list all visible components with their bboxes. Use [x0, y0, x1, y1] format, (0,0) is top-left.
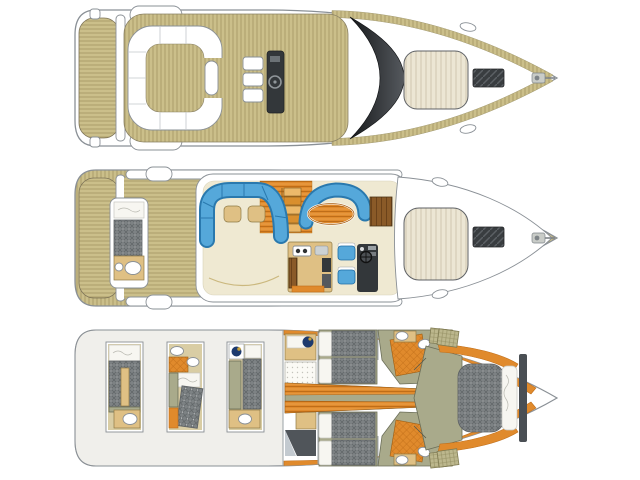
yacht-deck-plan-image	[0, 0, 640, 480]
vip-bow-cabin	[414, 329, 527, 468]
guest-bed-1	[332, 331, 375, 356]
bench-cushion	[114, 220, 142, 256]
optional-cabin-layout-2	[167, 342, 204, 432]
gunwale-pod-starboard	[146, 295, 172, 309]
cooktop	[293, 246, 311, 256]
helm-seat-1	[243, 57, 263, 70]
windlass-drum	[535, 236, 540, 241]
bow-bulkhead	[519, 354, 527, 442]
port-guest-cabin	[319, 330, 377, 384]
sink	[396, 456, 408, 465]
helm-seat-3	[243, 89, 263, 102]
deck-hatch	[473, 227, 504, 247]
sofa-cushion-2	[248, 206, 265, 222]
optional-cabin-layout-1	[106, 342, 143, 432]
blanket-roll	[303, 337, 314, 348]
cockpit-table-small	[125, 262, 141, 275]
bow-cleat-port	[459, 21, 476, 32]
bow-cleat-starboard	[459, 123, 476, 134]
helm-seat-2	[338, 270, 355, 284]
galley-sink	[315, 246, 328, 255]
cockpit-table	[205, 61, 218, 95]
sofa-cushion-1	[224, 206, 241, 222]
deck-plan-canvas	[0, 0, 640, 480]
helm-seat-1	[338, 246, 355, 260]
swim-platform	[79, 18, 119, 138]
steering-wheel-hub	[273, 80, 276, 83]
optional-cabin-layout-3	[227, 342, 264, 432]
flybridge-deck	[75, 6, 557, 150]
deck-hatch	[473, 69, 504, 87]
starboard-guest-cabin	[319, 412, 377, 466]
guest-bed-2	[332, 358, 375, 383]
guest-bed-4	[332, 440, 375, 465]
crew-seat	[296, 412, 316, 429]
galley-front	[292, 286, 324, 292]
foredeck-sunpad	[404, 208, 468, 280]
island-bed	[458, 364, 504, 432]
wardrobe-starboard	[437, 449, 459, 468]
galley-cabinet	[289, 258, 297, 288]
foredeck-sunpad	[404, 51, 468, 109]
wardrobe-port	[437, 329, 459, 348]
galley	[288, 242, 332, 292]
main-deck	[75, 167, 557, 309]
cockpit-stool	[115, 263, 123, 271]
stern-cleat-port	[90, 9, 100, 19]
bed-pillows	[502, 366, 517, 430]
sink	[396, 332, 408, 341]
tv-cabinet	[370, 197, 392, 226]
windlass-drum	[535, 76, 540, 81]
guest-bed-3	[332, 413, 375, 438]
oven	[322, 258, 331, 272]
lower-deck	[75, 326, 568, 470]
compass	[360, 247, 364, 251]
gunwale-pod-port	[146, 167, 172, 181]
console-screen	[270, 56, 280, 62]
helm-seat-2	[243, 73, 263, 86]
stern-cleat-starboard	[90, 137, 100, 147]
settee-inner-floor	[146, 44, 204, 112]
